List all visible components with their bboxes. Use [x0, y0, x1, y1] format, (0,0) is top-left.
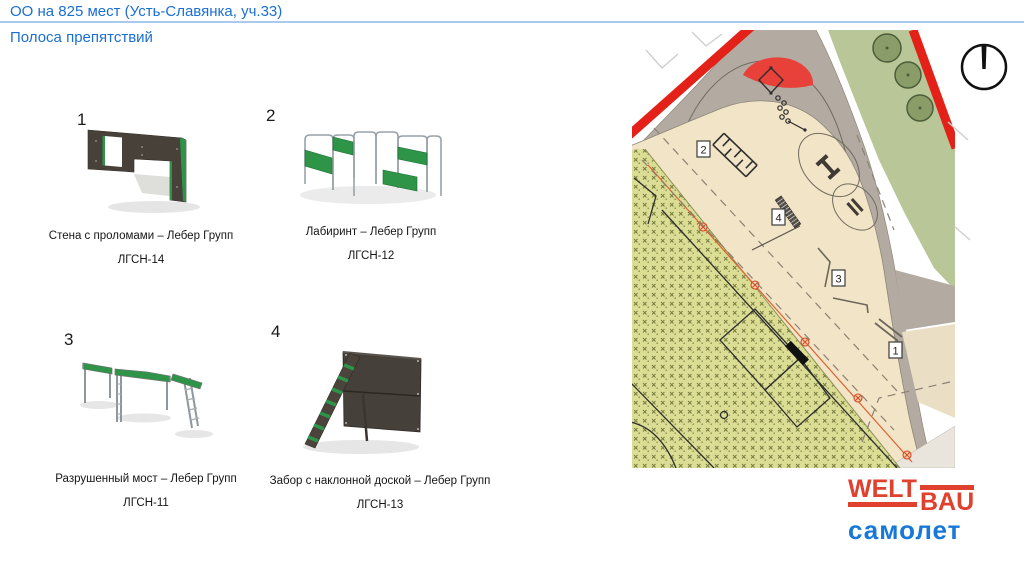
- page-subtitle: Полоса препятствий: [10, 29, 153, 46]
- svg-text:1: 1: [892, 346, 898, 358]
- logo-bau-text: BAU: [920, 485, 974, 514]
- map-marker-2: 2: [697, 141, 710, 157]
- item-3-code: ЛГСН-11: [46, 497, 246, 510]
- map-marker-4: 4: [772, 209, 785, 225]
- map-right-margin: [955, 30, 1024, 468]
- item-1-code: ЛГСН-14: [41, 254, 241, 267]
- ruined-bridge-image: [72, 348, 237, 443]
- item-4-caption: Забор с наклонной доской – Лебер Групп Л…: [265, 475, 495, 512]
- item-1-name: Стена с проломами – Лебер Групп: [41, 230, 241, 243]
- item-1-caption: Стена с проломами – Лебер Групп ЛГСН-14: [41, 230, 241, 267]
- item-2-code: ЛГСН-12: [271, 250, 471, 263]
- wall-with-breaches-image: [82, 117, 232, 222]
- logo-welt-text: WELT: [848, 477, 917, 507]
- item-4-number: 4: [271, 322, 280, 342]
- item-3-caption: Разрушенный мост – Лебер Групп ЛГСН-11: [46, 473, 246, 510]
- item-4-code: ЛГСН-13: [265, 499, 495, 512]
- title-divider: [0, 21, 1024, 23]
- page-title: ОО на 825 мест (Усть-Славянка, уч.33): [10, 3, 282, 20]
- company-logo: WELT BAU самолет: [848, 477, 1008, 546]
- item-2-name: Лабиринт – Лебер Групп: [271, 226, 471, 239]
- item-4-name: Забор с наклонной доской – Лебер Групп: [265, 475, 495, 488]
- labyrinth-image: [290, 100, 450, 215]
- item-2-number: 2: [266, 106, 275, 126]
- svg-text:3: 3: [835, 274, 841, 286]
- map-marker-1: 1: [889, 342, 902, 358]
- map-marker-3: 3: [832, 270, 845, 286]
- fence-with-inclined-board-image: [293, 344, 443, 466]
- slide: ОО на 825 мест (Усть-Славянка, уч.33) По…: [0, 0, 1024, 574]
- item-2-caption: Лабиринт – Лебер Групп ЛГСН-12: [271, 226, 471, 263]
- svg-text:4: 4: [775, 213, 781, 225]
- svg-text:2: 2: [700, 145, 706, 157]
- item-3-name: Разрушенный мост – Лебер Групп: [46, 473, 246, 486]
- site-plan-map: 2 4 3 1: [632, 30, 1024, 468]
- item-3-number: 3: [64, 330, 73, 350]
- logo-samolet-text: самолет: [848, 515, 1008, 546]
